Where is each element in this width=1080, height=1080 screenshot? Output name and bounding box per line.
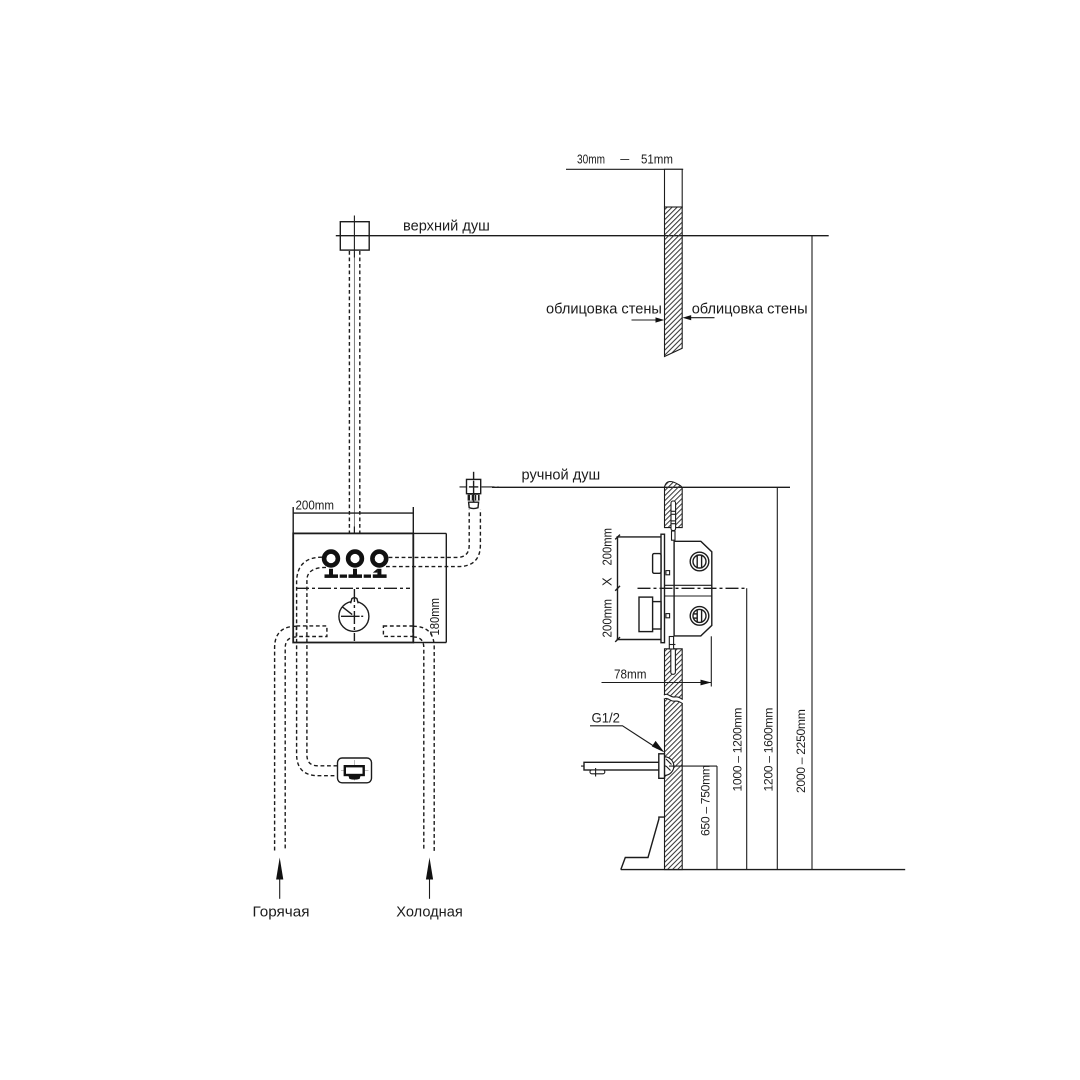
svg-text:X: X <box>600 577 615 586</box>
svg-text:200mm: 200mm <box>600 599 615 638</box>
svg-text:2000 – 2250mm: 2000 – 2250mm <box>794 709 808 793</box>
svg-text:облицовка стены: облицовка стены <box>546 302 662 318</box>
svg-text:ручной душ: ручной душ <box>522 468 601 484</box>
svg-text:–: – <box>620 151 630 166</box>
svg-text:Горячая: Горячая <box>253 905 310 921</box>
svg-text:1200 – 1600mm: 1200 – 1600mm <box>762 708 776 792</box>
svg-text:G1/2: G1/2 <box>592 710 621 726</box>
svg-text:200mm: 200mm <box>296 498 335 513</box>
svg-text:180mm: 180mm <box>427 598 442 636</box>
svg-text:200mm: 200mm <box>600 528 615 566</box>
svg-text:78mm: 78mm <box>614 667 647 682</box>
svg-text:облицовка стены: облицовка стены <box>692 302 808 318</box>
svg-text:верхний душ: верхний душ <box>403 219 490 235</box>
svg-text:1000 – 1200mm: 1000 – 1200mm <box>731 708 745 792</box>
svg-text:Холодная: Холодная <box>396 905 462 921</box>
svg-text:650 – 750mm: 650 – 750mm <box>699 765 713 836</box>
svg-text:30mm: 30mm <box>577 152 605 167</box>
svg-text:51mm: 51mm <box>641 152 673 167</box>
